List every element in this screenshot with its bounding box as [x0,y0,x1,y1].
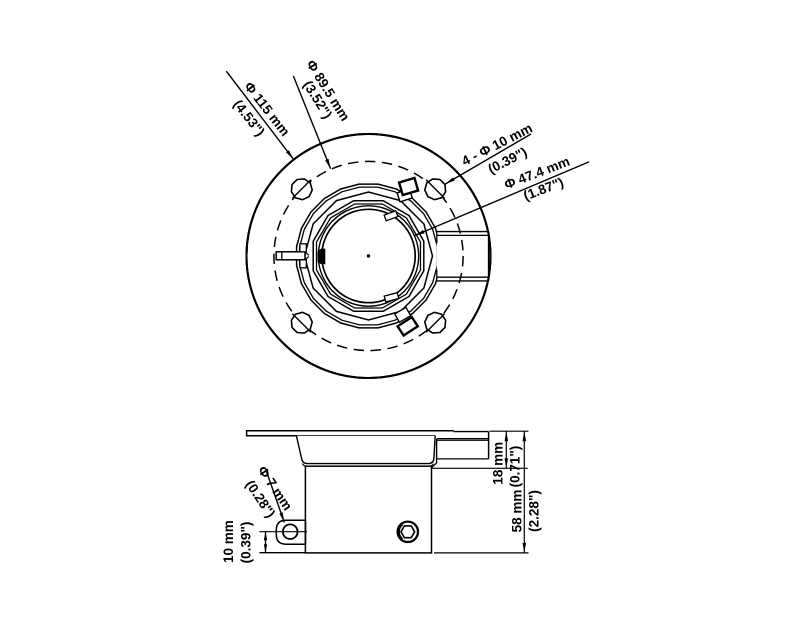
svg-text:(0.71"): (0.71") [508,446,523,488]
svg-text:(0.39"): (0.39") [239,522,254,564]
svg-text:(2.28"): (2.28") [526,490,541,532]
svg-text:10 mm: 10 mm [221,520,236,563]
svg-text:18 mm: 18 mm [491,442,506,485]
svg-text:58 mm: 58 mm [510,490,525,533]
